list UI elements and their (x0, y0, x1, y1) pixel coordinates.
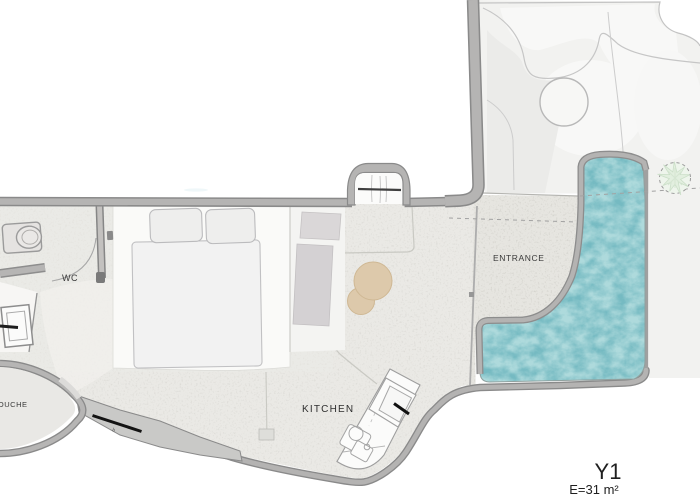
svg-text:KITCHEN: KITCHEN (302, 404, 354, 415)
svg-text:Y1: Y1 (595, 459, 622, 484)
svg-text:DOUCHE: DOUCHE (0, 400, 28, 409)
svg-text:E=31 m²: E=31 m² (569, 482, 619, 497)
svg-text:WC: WC (62, 273, 78, 283)
svg-text:ENTRANCE: ENTRANCE (493, 253, 545, 263)
